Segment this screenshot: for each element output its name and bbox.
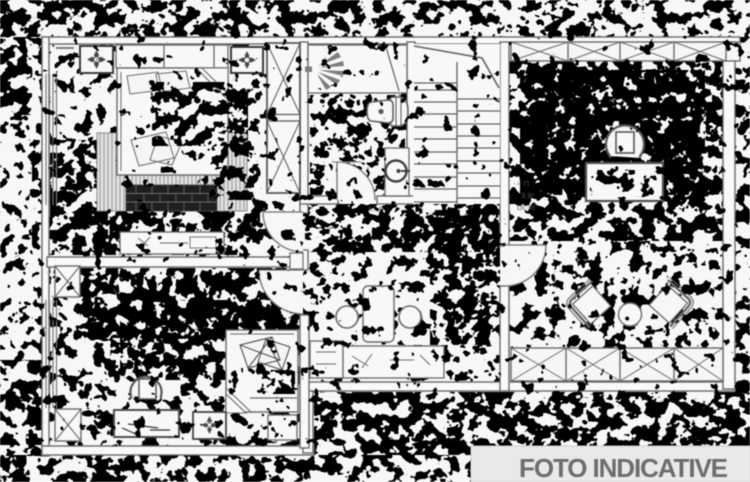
- svg-text:FOTO INDICATIVE: FOTO INDICATIVE: [519, 453, 728, 482]
